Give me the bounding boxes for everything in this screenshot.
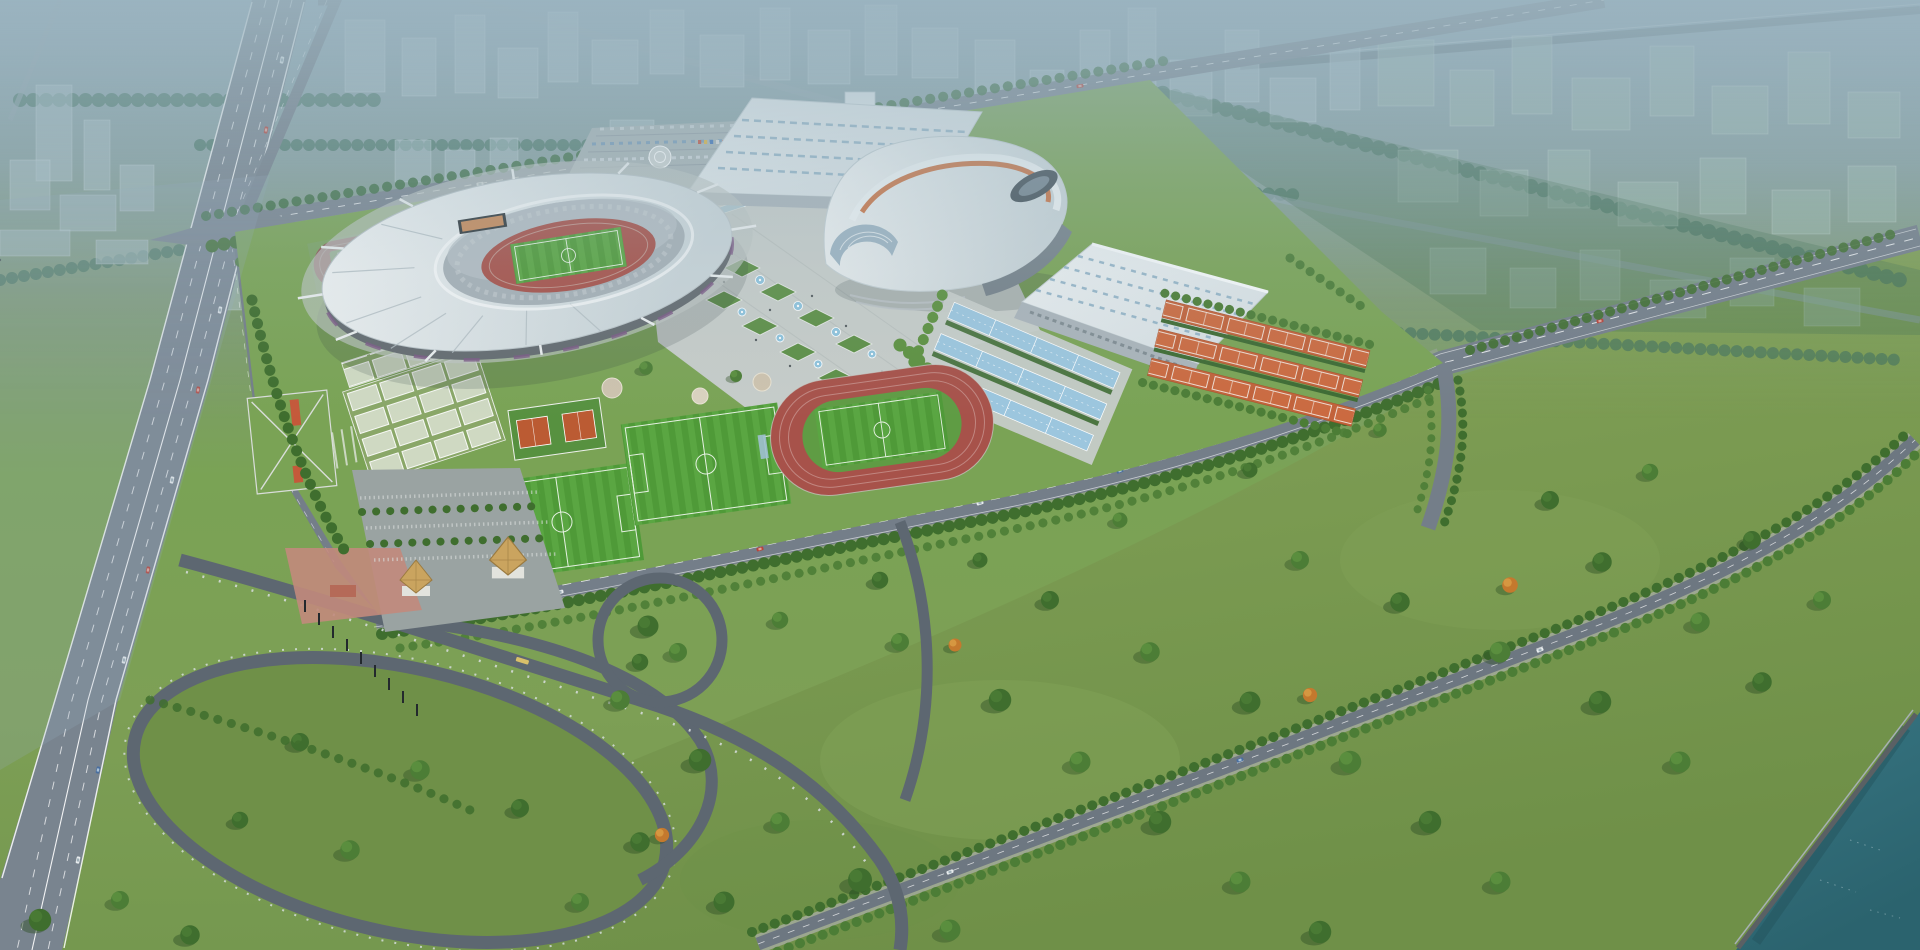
gatehouse bbox=[330, 585, 356, 597]
football-pitch-2 bbox=[621, 403, 792, 526]
rendering-stage: Aerial architectural rendering of a rive… bbox=[0, 0, 1920, 950]
haze-overlay bbox=[0, 0, 1920, 420]
aerial-rendering-canvas bbox=[0, 0, 1920, 950]
